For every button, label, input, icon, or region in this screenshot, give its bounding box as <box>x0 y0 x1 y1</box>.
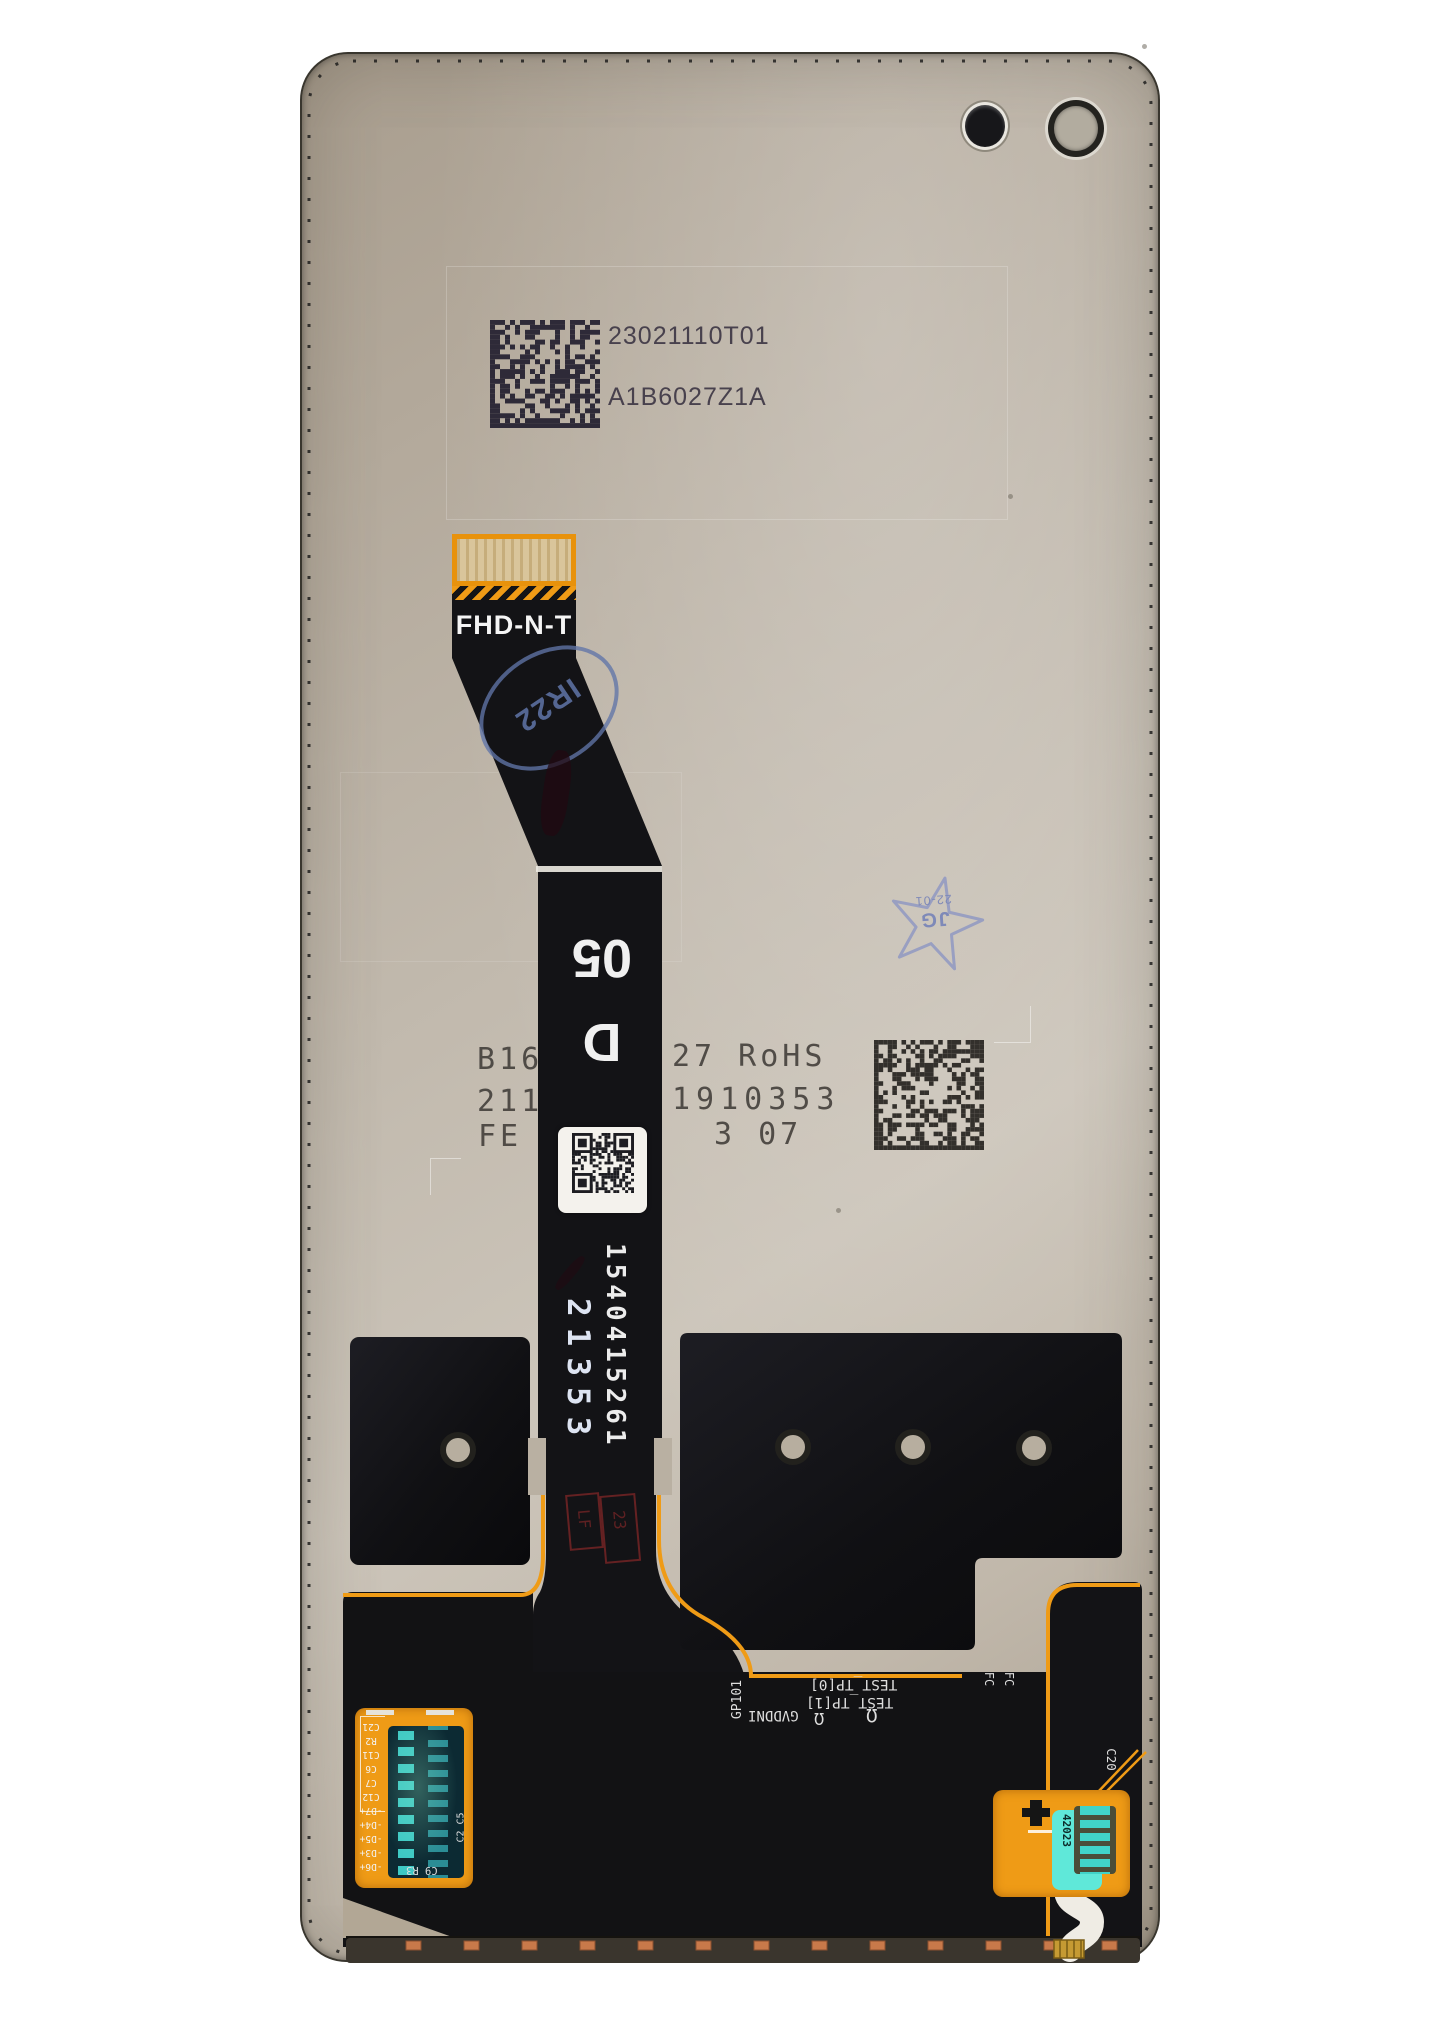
red-qc-stamp: LF 23 <box>561 1485 644 1569</box>
silkscreen-c2-c5: C2 C5 <box>456 1812 467 1842</box>
probe-loop-icon: Ω <box>866 1704 877 1726</box>
silkscreen-tick <box>426 1710 454 1715</box>
print-row3-right: 3 07 <box>714 1117 802 1152</box>
alignment-hole <box>778 1432 808 1462</box>
silkscreen-gpio: GP101 <box>730 1680 745 1719</box>
right-connector-code: 42023 <box>1060 1814 1073 1847</box>
silkscreen-test-tp0: TEST_TP[0] <box>810 1676 897 1692</box>
probe-loop-icon: Ω <box>814 1708 824 1728</box>
ribbon-slot-left <box>528 1438 546 1495</box>
connector-pin-label: C12 <box>356 1789 386 1803</box>
ribbon-white-line <box>536 866 662 872</box>
connector-pin-label: C6 <box>356 1761 386 1775</box>
silkscreen-c20: C20 <box>1104 1748 1119 1771</box>
connector-pin-label: -D3+ <box>356 1845 386 1859</box>
silkscreen-fc-left: FC <box>982 1672 996 1686</box>
alignment-hole <box>443 1435 473 1465</box>
camera-hole <box>962 102 1008 150</box>
grade-marking: D 05 <box>556 916 648 1084</box>
datamatrix-code-mid <box>874 1040 984 1150</box>
print-row1-right: 27 RoHS <box>672 1039 826 1074</box>
alignment-hole <box>1019 1433 1049 1463</box>
model-code-text: A1B6027Z1A <box>608 383 767 412</box>
alignment-hole <box>898 1432 928 1462</box>
flex-circuit-graphics <box>0 0 1452 2037</box>
connector-pin-label: R2 <box>356 1733 386 1747</box>
left-connector-labels: C21R2C11C6C7C12-D7+-D4+-D5+-D3+-D6+ <box>356 1719 386 1873</box>
flex-solder-teeth <box>452 586 576 600</box>
silkscreen-gvddni: GVDDNI <box>748 1707 799 1723</box>
connector-pin-label: -D7+ <box>356 1803 386 1817</box>
product-photo: 23021110T01 A1B6027Z1A FHD-N-T IR22 D 05… <box>0 0 1452 2037</box>
connector-pin-label: C21 <box>356 1719 386 1733</box>
connector-pin-label: -D6+ <box>356 1859 386 1873</box>
gold-tail-connector <box>1054 1940 1084 1958</box>
print-row1-left: B16 <box>477 1042 543 1077</box>
qr-code <box>572 1133 634 1193</box>
connector-pin-label: C7 <box>356 1775 386 1789</box>
connector-pin-label: C11 <box>356 1747 386 1761</box>
left-stiffener-plate <box>350 1337 530 1565</box>
right-connector-socket <box>1074 1806 1116 1874</box>
print-row2-right: 1910353 <box>672 1082 840 1117</box>
cross-cutout <box>1022 1808 1050 1817</box>
print-row2-left: 211 <box>477 1084 543 1119</box>
silkscreen-tick <box>366 1710 394 1715</box>
datamatrix-code-top <box>490 320 600 428</box>
flex-marking-label: FHD-N-T <box>452 610 576 641</box>
sensor-hole <box>1048 100 1104 157</box>
flex-contact-pad <box>452 534 576 586</box>
connector-pin-label: -D4+ <box>356 1817 386 1831</box>
star-stamp-text: JG 22-01 <box>890 890 978 933</box>
ribbon-batch-number: 21353 <box>560 1298 596 1446</box>
left-connector-socket <box>388 1726 464 1878</box>
silkscreen-fc-right: FC <box>1002 1672 1016 1686</box>
print-row3-left: FE <box>478 1119 522 1154</box>
connector-pin-label: -D5+ <box>356 1831 386 1845</box>
ribbon-serial-number: 1540415261 <box>600 1243 630 1450</box>
silkscreen-c9-r3: C9 R3 <box>406 1864 438 1876</box>
serial-text: 23021110T01 <box>608 322 770 351</box>
ribbon-slot-right <box>654 1438 672 1495</box>
